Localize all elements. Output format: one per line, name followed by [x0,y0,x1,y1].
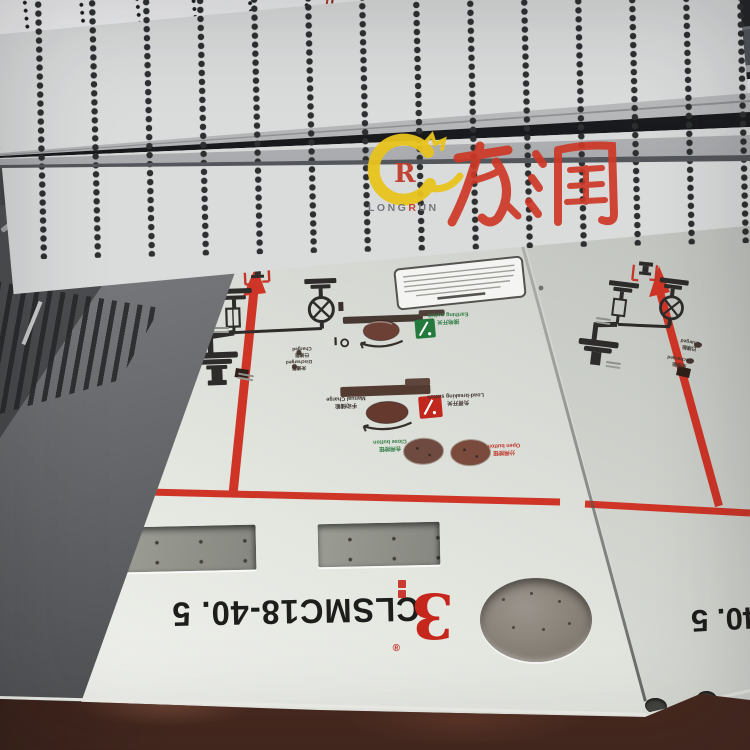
instruction-nameplate [394,256,525,309]
dragon-c-logo: R [374,135,460,200]
watermark-en-text: LONGRUN [368,202,439,214]
panel-cutout-left [125,525,257,573]
monogram-r: R [394,159,416,189]
watermark-graphics: R [340,130,670,250]
panel-model-text-right: 40. 5 [639,595,750,641]
panel-cutout-right [318,522,441,568]
brand-logo: 3 ® [390,578,458,644]
watermark-cn-strokes [452,146,614,223]
panel-round-hole [480,578,592,662]
brand-seal-marks [398,590,406,598]
brand-logo-glyph: 3 [411,579,454,652]
registered-mark: ® [393,643,400,654]
right-panel-state-windows [686,342,702,364]
cable-head-symbol-right [632,261,657,282]
pinhole [539,286,544,291]
photo-flatbed-printer-scene: 接地开关 Earthing switch 负荷开关 Load-breaking … [0,0,750,750]
longrun-watermark: R LONGRUN 龙润 [340,130,670,250]
